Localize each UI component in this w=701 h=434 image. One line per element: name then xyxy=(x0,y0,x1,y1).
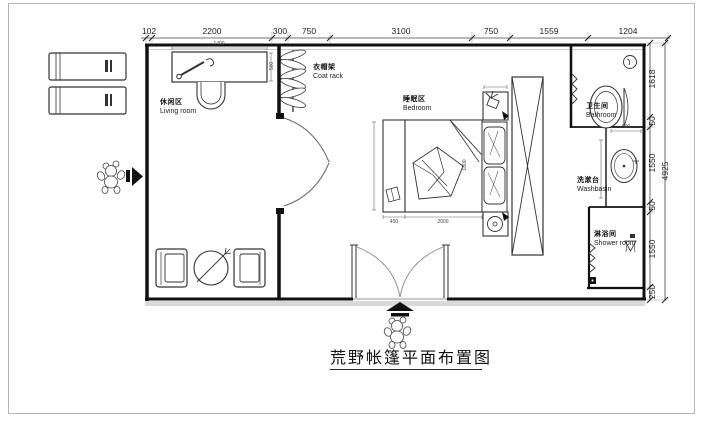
entrance-arrow-left-icon xyxy=(126,167,143,186)
floor-plan-canvas: 102 2200 300 750 3100 750 1559 1204 1618… xyxy=(0,0,701,434)
dim-top-1559: 1559 xyxy=(524,26,574,36)
label-washbasin-en: Washbasin xyxy=(577,185,611,194)
desk-chair xyxy=(197,82,225,109)
door-bedroom-entrance xyxy=(350,245,450,298)
wardrobe xyxy=(512,77,543,255)
label-bedroom: 睡眠区 Bedroom xyxy=(403,95,431,113)
label-bedroom-zh: 睡眠区 xyxy=(403,95,431,104)
label-bathroom-en: Bathroom xyxy=(586,111,616,120)
label-living-en: Living room xyxy=(160,107,196,116)
washbasin-fixture xyxy=(611,150,639,183)
bed-bench xyxy=(383,120,405,212)
dim-desk-depth: 500 xyxy=(269,52,275,80)
label-bathroom-zh: 卫生间 xyxy=(586,102,616,111)
outdoor-lounger-bottom xyxy=(49,87,126,114)
label-bathroom: 卫生间 Bathroom xyxy=(586,102,616,120)
folding-door-bathroom xyxy=(572,74,577,104)
label-living-zh: 休闲区 xyxy=(160,98,196,107)
dim-top-2200: 2200 xyxy=(187,26,237,36)
nightstand-bottom xyxy=(483,212,509,236)
dim-top-102: 102 xyxy=(124,26,174,36)
label-coat-rack-zh: 衣帽架 xyxy=(313,63,343,72)
dim-right-total-4925: 4925 xyxy=(660,149,670,193)
dim-top-750b: 750 xyxy=(466,26,516,36)
dim-top-750a: 750 xyxy=(284,26,334,36)
nightstand-top xyxy=(483,91,509,120)
dim-bed-width: 1800 xyxy=(462,151,468,179)
outdoor-lounger-top xyxy=(49,53,126,80)
dim-basin-width: 500 xyxy=(614,124,638,130)
label-washbasin: 洗漱台 Washbasin xyxy=(577,176,611,194)
label-living-room: 休闲区 Living room xyxy=(160,98,196,116)
bed xyxy=(405,120,482,212)
dim-bench-width: 450 xyxy=(382,219,406,225)
plan-title: 荒野帐篷平面布置图 xyxy=(330,344,482,370)
dim-right-1550a: 1550 xyxy=(647,141,657,185)
mascot-left xyxy=(96,161,127,194)
floor-drain xyxy=(589,277,596,284)
armchair-right xyxy=(234,249,265,287)
label-coat-rack: 衣帽架 Coat rack xyxy=(313,63,343,81)
label-shower-en: Shower room xyxy=(594,239,636,248)
armchair-left xyxy=(156,249,187,287)
label-bedroom-en: Bedroom xyxy=(403,104,431,113)
dim-top-3100: 3100 xyxy=(376,26,426,36)
dim-top-1204: 1204 xyxy=(603,26,653,36)
dim-right-1618: 1618 xyxy=(647,57,657,101)
bed-pillows xyxy=(482,122,507,212)
dim-desk-width: 1400 xyxy=(205,41,233,47)
dim-right-50b: 50 xyxy=(647,184,657,228)
tea-table xyxy=(194,248,231,285)
ceiling-lamp-icon xyxy=(624,56,637,69)
label-coat-rack-en: Coat rack xyxy=(313,72,343,81)
label-shower-room: 淋浴间 Shower room xyxy=(594,230,636,248)
coat-rack xyxy=(280,48,307,112)
dim-bed-length: 2000 xyxy=(429,219,457,225)
dim-right-250: 250 xyxy=(647,270,657,314)
dim-right-50a: 50 xyxy=(647,99,657,143)
door-living-bedroom xyxy=(276,113,329,214)
label-shower-zh: 淋浴间 xyxy=(594,230,636,239)
dim-right-1550b: 1550 xyxy=(647,227,657,271)
desk xyxy=(172,52,267,82)
label-washbasin-zh: 洗漱台 xyxy=(577,176,611,185)
